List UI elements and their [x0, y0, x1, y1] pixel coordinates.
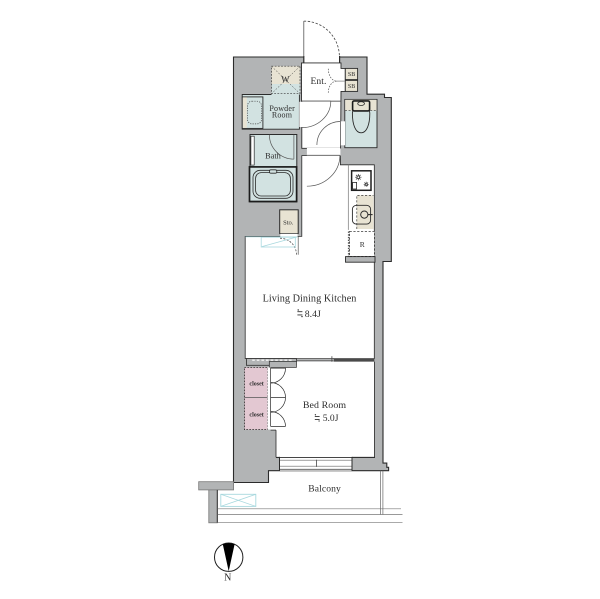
svg-text:Room: Room: [272, 111, 293, 120]
svg-text:N: N: [224, 573, 231, 584]
svg-text:closet: closet: [249, 412, 263, 418]
svg-text:Ent.: Ent.: [310, 76, 326, 87]
svg-text:Sto.: Sto.: [283, 219, 294, 226]
svg-text:SB: SB: [348, 84, 355, 90]
svg-text:5.0J: 5.0J: [323, 413, 339, 424]
svg-text:W: W: [281, 74, 290, 84]
svg-text:R: R: [360, 240, 365, 249]
svg-text:SB: SB: [348, 72, 355, 78]
svg-text:closet: closet: [249, 381, 263, 387]
svg-text:Bed Room: Bed Room: [303, 400, 347, 411]
svg-text:Balcony: Balcony: [308, 484, 341, 495]
svg-text:8.4J: 8.4J: [305, 309, 321, 320]
svg-text:Living Dining Kitchen: Living Dining Kitchen: [263, 294, 357, 305]
svg-text:Bath: Bath: [265, 152, 282, 161]
